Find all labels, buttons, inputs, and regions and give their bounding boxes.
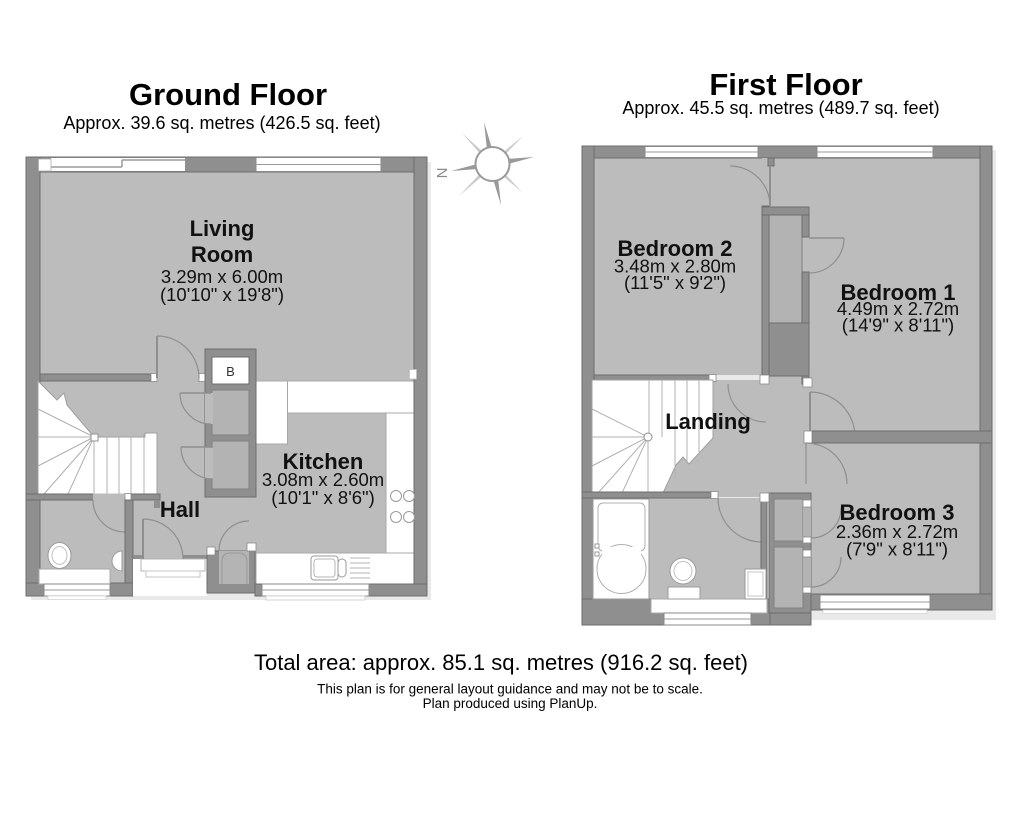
svg-text:Approx. 39.6 sq. metres (426.5: Approx. 39.6 sq. metres (426.5 sq. feet) (63, 113, 380, 133)
svg-text:(10'10" x 19'8"): (10'10" x 19'8") (160, 284, 284, 305)
svg-text:Hall: Hall (160, 497, 200, 522)
svg-text:B: B (226, 364, 235, 379)
svg-text:First Floor: First Floor (709, 67, 862, 102)
svg-text:(14'9" x 8'11"): (14'9" x 8'11") (842, 315, 954, 336)
svg-text:Landing: Landing (665, 409, 751, 434)
svg-text:Total area: approx. 85.1 sq. m: Total area: approx. 85.1 sq. metres (916… (254, 650, 748, 675)
svg-text:Room: Room (191, 242, 253, 267)
svg-text:(7'9" x 8'11"): (7'9" x 8'11") (846, 539, 948, 560)
svg-text:N: N (434, 168, 451, 179)
svg-text:(10'1" x 8'6"): (10'1" x 8'6") (271, 487, 375, 508)
svg-text:Approx. 45.5 sq. metres (489.7: Approx. 45.5 sq. metres (489.7 sq. feet) (622, 98, 939, 118)
svg-text:Living: Living (190, 216, 255, 241)
svg-text:Ground Floor: Ground Floor (129, 77, 327, 112)
svg-text:This plan is for general layou: This plan is for general layout guidance… (317, 682, 703, 697)
svg-text:Plan produced using PlanUp.: Plan produced using PlanUp. (423, 696, 598, 711)
svg-text:(11'5" x 9'2"): (11'5" x 9'2") (624, 272, 726, 293)
